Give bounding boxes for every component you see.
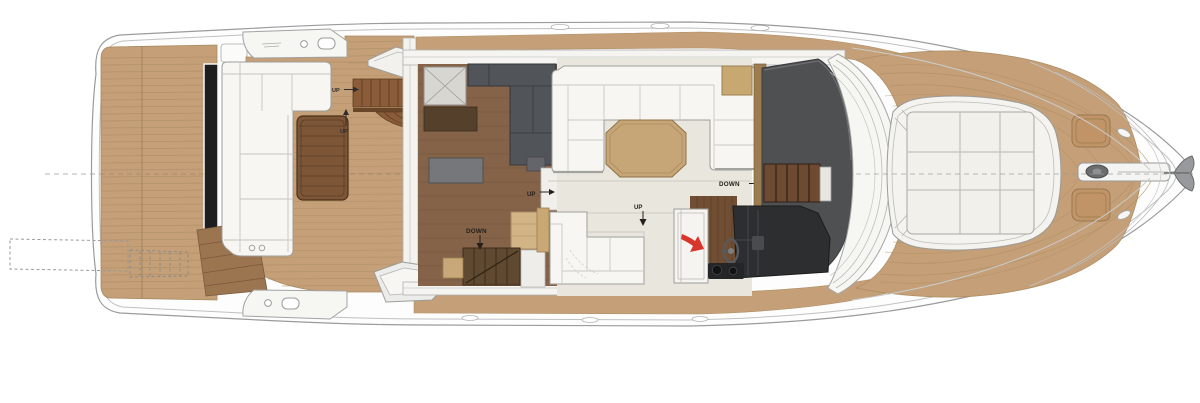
svg-text:UP: UP (634, 205, 642, 211)
svg-text:UP: UP (340, 129, 348, 135)
svg-text:DOWN: DOWN (466, 228, 487, 235)
svg-text:DOWN: DOWN (719, 181, 740, 188)
svg-text:UP: UP (332, 88, 340, 94)
svg-text:UP: UP (527, 192, 535, 198)
